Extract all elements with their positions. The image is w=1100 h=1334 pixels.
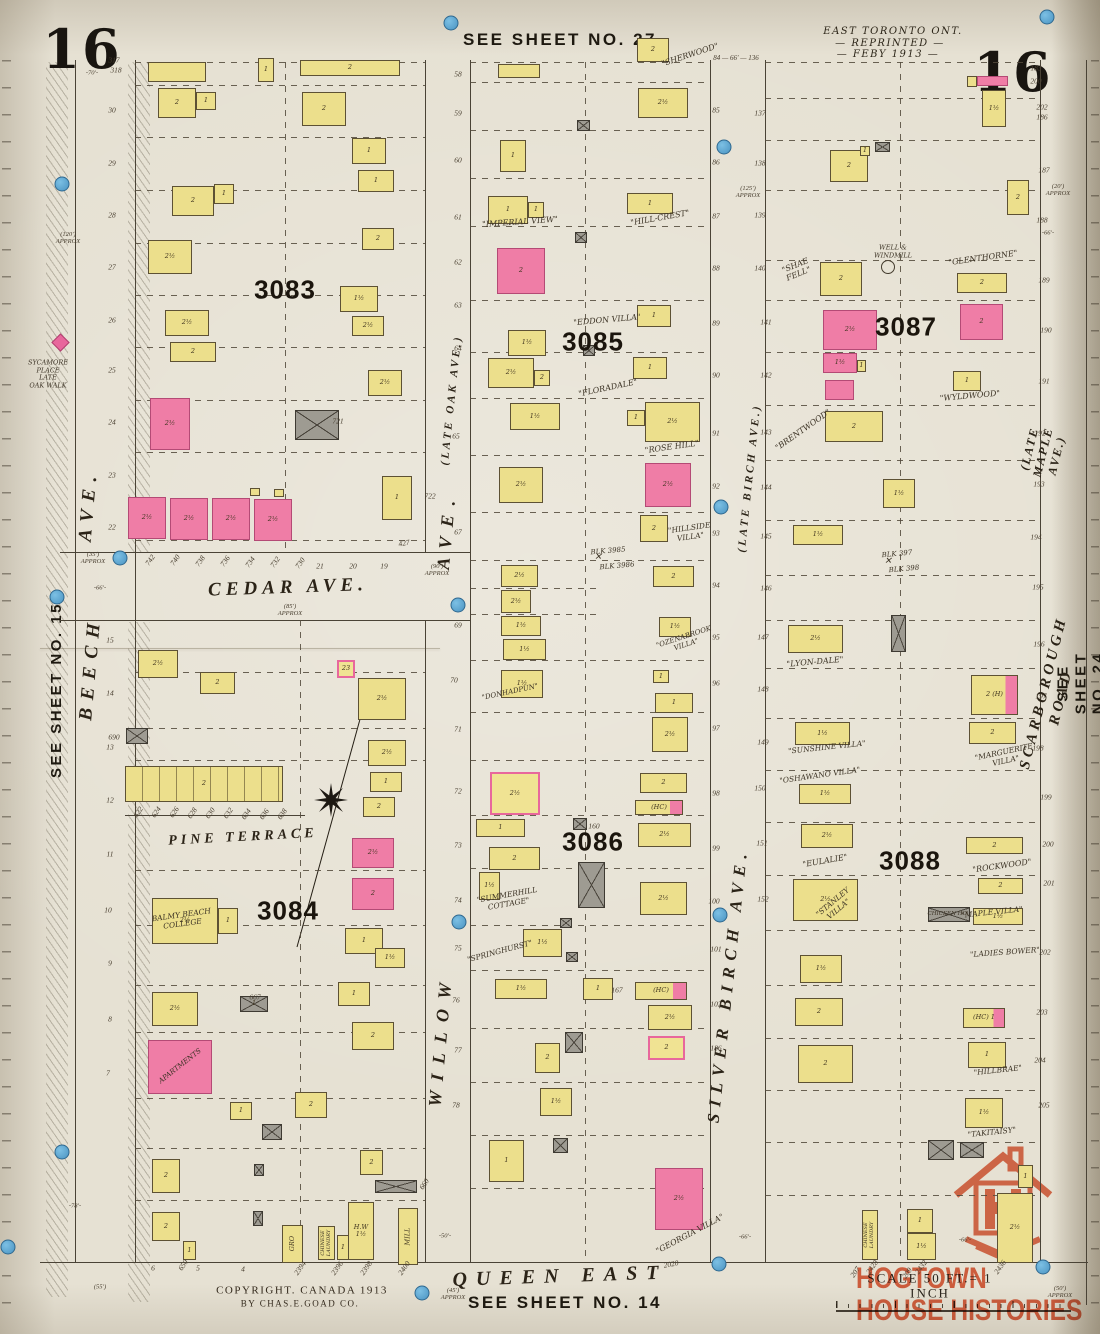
lot-number: 730 [293, 556, 307, 570]
lot-number: 93 [712, 529, 720, 538]
misc-label: CHINESE LAUNDRY [321, 1230, 333, 1256]
lot-number: 27 [108, 263, 116, 272]
villa-label: "HILLSIDE VILLA" [668, 521, 713, 544]
street-line [60, 620, 470, 621]
lot-line [470, 925, 710, 926]
lot-number: 89 [712, 319, 720, 328]
building-annotation: 1½ [354, 295, 364, 302]
lot-number: 636 [257, 807, 271, 821]
building-annotation: 1 [374, 177, 378, 184]
building-annotation: 1½ [820, 790, 830, 797]
lot-number: 427 [398, 538, 411, 549]
lot-number: 187 [1038, 166, 1049, 175]
lot-number: 194 [1030, 533, 1041, 542]
lot-line [765, 352, 1040, 353]
building [253, 1211, 263, 1226]
lot-number: 183 [1030, 64, 1041, 73]
building-annotation: 2½ [268, 516, 278, 523]
goad-fire-insurance-map-sheet: 16 16 SEE SHEET NO. 27 SEE SHEET NO. 14 … [0, 0, 1100, 1334]
building-annotation: 1½ [835, 359, 845, 366]
building [126, 728, 148, 744]
lot-number: 61 [454, 213, 462, 222]
building-annotation: 2½ [659, 831, 669, 838]
lot-line [470, 660, 710, 661]
building-annotation: (HC) [653, 987, 669, 994]
building: 2 [795, 998, 843, 1026]
lot-number: 63 [454, 301, 462, 310]
lot-number: 76 [452, 996, 460, 1005]
misc-label: ✕ [884, 557, 892, 568]
building: 2½ [638, 823, 691, 847]
lot-number: 140 [754, 264, 765, 273]
building-annotation: 2½ [665, 731, 675, 738]
building [960, 1142, 984, 1158]
lot-line [470, 614, 600, 615]
building-annotation: 1 [534, 206, 538, 213]
lot-number: 201 [1043, 879, 1054, 888]
lot-number: 167 [611, 986, 622, 995]
fire-hydrant-icon [50, 590, 65, 605]
building-annotation: 2 [376, 235, 380, 242]
building: 1½ [800, 955, 842, 983]
lot-number: 7 [106, 1069, 110, 1078]
lot-number: 88 [712, 264, 720, 273]
building-annotation: 2 [202, 780, 206, 787]
building [566, 952, 578, 962]
building: 2½ [488, 358, 534, 388]
lot-number: 96 [712, 679, 720, 688]
building-annotation: 1½ [530, 413, 540, 420]
dim-label: -66'- [739, 1234, 751, 1241]
building: 2 [640, 515, 668, 542]
lot-number: 634 [239, 807, 253, 821]
villa-label: "LADIES BOWER" [970, 946, 1040, 960]
lot-number: 97 [712, 724, 720, 733]
building: 2 [152, 1159, 180, 1193]
building: 1½ [907, 1233, 936, 1260]
lot-number: 72 [454, 787, 462, 796]
building-annotation: 2 [322, 105, 326, 112]
building-annotation: 2 [191, 348, 195, 355]
lot-number: 202 [1036, 103, 1047, 112]
lot-line [470, 1082, 710, 1083]
lot-number: 8 [108, 1015, 112, 1024]
block-label: 3088 [879, 846, 941, 877]
building-annotation: 1½ [516, 622, 526, 629]
lot-line [765, 62, 1040, 63]
misc-label: CHINESE LAUNDRY [864, 1222, 876, 1248]
lot-line [135, 672, 425, 673]
dim-label: (45') APPROX [441, 1287, 466, 1301]
lot-number: 94 [712, 581, 720, 590]
lot-line [470, 82, 710, 83]
lot-line [765, 190, 1040, 191]
lot-line [765, 822, 1040, 823]
lot-number: 660 [417, 1177, 431, 1191]
building [967, 76, 977, 87]
dim-label: (55') [94, 1284, 106, 1291]
lot-number: 200 [1030, 77, 1041, 86]
building-annotation: 2 [852, 423, 856, 430]
building: 1½ [501, 616, 541, 636]
lot-number: 145 [760, 532, 771, 541]
lot-line [470, 300, 710, 301]
building: 2 [957, 273, 1007, 293]
building-annotation: 1 [511, 152, 515, 159]
building-annotation: 1 [634, 414, 638, 421]
lot-number: 142 [760, 371, 771, 380]
building: 2 [152, 1212, 180, 1241]
building: 2½ [212, 498, 250, 540]
see-sheet-ref-left: SEE SHEET NO. 15 [48, 602, 66, 778]
building: 2 [302, 92, 346, 126]
lot-number: 147 [757, 633, 768, 642]
dim-label: -70'- [86, 70, 98, 77]
street-line [425, 60, 426, 552]
lot-line [765, 575, 1040, 576]
lot-number: 202 [1039, 948, 1050, 957]
building-annotation: 2 [980, 279, 984, 286]
lot-line [470, 815, 710, 816]
lot-line [470, 1135, 710, 1136]
building-annotation: 2 [215, 679, 219, 686]
lot-number: 85 [712, 106, 720, 115]
building-annotation: 1 [985, 1051, 989, 1058]
building: 1½ [793, 525, 843, 545]
building: 2½ [170, 498, 208, 540]
building-annotation: 1½ [519, 646, 529, 653]
building-annotation: 2 [651, 46, 655, 53]
dim-label: (20') APPROX [1046, 183, 1071, 197]
dim-label: (35') APPROX [81, 551, 106, 565]
building-annotation: 1 [965, 377, 969, 384]
building-annotation: 2 [1016, 194, 1020, 201]
building-annotation: 2½ [667, 418, 677, 425]
building-annotation: 1½ [989, 105, 999, 112]
building [498, 64, 540, 78]
lot-number: 736 [218, 554, 232, 568]
dim-label: (90') APPROX [425, 563, 450, 577]
building-annotation: 2½ [382, 749, 392, 756]
building [977, 76, 1008, 86]
lot-number: 738 [193, 554, 207, 568]
lot-number: 732 [268, 555, 282, 569]
lot-number: 26 [108, 316, 116, 325]
building-annotation: 1½ [816, 965, 826, 972]
lot-line [765, 300, 1040, 301]
lot-number: 12 [106, 796, 114, 805]
building: 2 (H) [971, 675, 1018, 715]
villa-label: "TAKITAISY" [967, 1126, 1016, 1140]
lot-number: 15 [106, 636, 114, 645]
building: 2 [125, 766, 283, 802]
building-annotation: 2 [992, 842, 996, 849]
dim-label: (125') APPROX [736, 185, 761, 199]
lot-number: 60 [454, 156, 462, 165]
street-line [1040, 60, 1041, 1262]
building-annotation: 2½ [184, 515, 194, 522]
building-annotation: 2 [512, 855, 516, 862]
building-annotation: 1 [863, 147, 867, 154]
building-annotation: 2 [309, 1101, 313, 1108]
lot-number: 198 [1032, 744, 1043, 753]
building-annotation: 1 [384, 778, 388, 785]
building-annotation: 1 [596, 985, 600, 992]
lot-number: 626 [167, 805, 181, 819]
building: 1½ [508, 330, 546, 356]
lot-number: 10 [104, 906, 112, 915]
lot-number: 149 [757, 738, 768, 747]
misc-label: SYCAMORE PLACE LATE OAK WALK [28, 360, 68, 391]
building: 1 [633, 357, 667, 379]
building: 2½ [128, 497, 166, 539]
lot-number: 200 [1042, 840, 1053, 849]
building: 2 [978, 878, 1023, 894]
building-annotation: 1½ [551, 1098, 561, 1105]
copyright-line: COPYRIGHT. CANADA 1913 [216, 1285, 388, 1298]
building: 1 [230, 1102, 252, 1120]
lot-number: 87 [712, 212, 720, 221]
building: 1½ [965, 1098, 1003, 1128]
building [875, 142, 890, 152]
building-annotation: 2 [998, 882, 1002, 889]
building-annotation: 1 [498, 824, 502, 831]
building: 2 [362, 228, 394, 250]
building-annotation: 1 [226, 917, 230, 924]
building: 2 [352, 878, 394, 910]
street-line [135, 60, 136, 1262]
street-label: (LATE OAK AVE.) [439, 334, 466, 466]
building: 1 [338, 982, 370, 1006]
building-annotation: 1 [504, 1157, 508, 1164]
building: 2½ [638, 88, 688, 118]
building-annotation: 2½ [142, 514, 152, 521]
building-annotation: 2½ [368, 849, 378, 856]
building: 2 [1007, 180, 1029, 215]
lot-line [135, 1148, 425, 1149]
lot-number: 740 [168, 553, 182, 567]
building-annotation: 1½ [979, 1109, 989, 1116]
lot-number: 69 [454, 621, 462, 630]
building: (HC) [635, 800, 683, 815]
building-annotation: 2 [545, 1054, 549, 1061]
building-annotation: 1 [362, 937, 366, 944]
building: 1½ [510, 403, 560, 430]
building-annotation: 2 [661, 779, 665, 786]
lot-line [470, 398, 710, 399]
lot-line [765, 718, 1040, 719]
lot-number: 58 [454, 70, 462, 79]
lot-number: 150 [754, 784, 765, 793]
building: 1 [258, 58, 274, 82]
lot-line [765, 520, 1040, 521]
lot-number: 23 [108, 471, 116, 480]
building: 2½ [368, 740, 406, 766]
building-annotation: 2 [990, 729, 994, 736]
building-annotation: 2 [979, 318, 983, 325]
lot-line [470, 760, 710, 761]
lot-number: 29 [108, 159, 116, 168]
building [578, 862, 605, 908]
lot-line [765, 668, 1040, 669]
dim-label: -50'- [439, 1233, 451, 1240]
building-annotation: 2 [519, 267, 523, 274]
building: 2½ [490, 772, 540, 815]
building: 2½ [648, 1005, 692, 1030]
dim-label: (120') APPROX [56, 231, 81, 245]
building-annotation: 2½ [674, 1195, 684, 1202]
building [577, 120, 590, 131]
building-annotation: 2 [540, 374, 544, 381]
building-annotation: 1 [222, 190, 226, 197]
building: GRO [282, 1225, 303, 1263]
lot-line [765, 1142, 1040, 1143]
building: 2½ [138, 650, 178, 678]
lot-number: 13 [106, 743, 114, 752]
map-title-line: — FEBY 1913 — [837, 49, 940, 61]
building-annotation: 2 [164, 1223, 168, 1230]
sheet-edge-ticks [2, 60, 11, 1310]
lot-line [765, 460, 1040, 461]
lot-line [765, 1038, 1040, 1039]
building-annotation: 2 [839, 275, 843, 282]
lot-number: 318 [110, 66, 121, 75]
lot-number: 193 [1033, 480, 1044, 489]
building-annotation: 2 [652, 525, 656, 532]
villa-label: "GLENTHORNE" [948, 248, 1018, 267]
building-annotation: 2½ [380, 379, 390, 386]
building [565, 1032, 583, 1053]
building-annotation: MILL [404, 1228, 411, 1246]
building-annotation: 1½ [916, 1243, 926, 1250]
building: 2 [172, 186, 214, 216]
building-annotation: 1 [264, 66, 268, 73]
building: 1 [1018, 1165, 1033, 1188]
building-annotation: 2½ [510, 790, 520, 797]
lot-number: 721 [332, 417, 343, 426]
lot-line [470, 560, 710, 561]
dim-label: -66'- [959, 1237, 971, 1244]
building-annotation: 2½ [165, 420, 175, 427]
lot-line [765, 985, 1040, 986]
building-annotation: 2 [823, 1060, 827, 1067]
building: 2 [966, 837, 1023, 854]
lot-number: 690 [108, 733, 119, 742]
building: 2½ [150, 398, 190, 450]
building: 1 [637, 305, 671, 327]
building-annotation: 23 [342, 665, 350, 672]
dim-label: (50') APPROX [1048, 1285, 1073, 1299]
building: 1 [583, 978, 613, 1000]
dim-label: 84 — 66' — 136 [713, 54, 758, 62]
building [928, 1140, 954, 1160]
building-annotation: 2½ [226, 515, 236, 522]
lot-number: 628 [185, 806, 199, 820]
building: 1 [655, 693, 693, 713]
building-annotation: 1 [859, 362, 863, 369]
watermark-text: HOGTOWN [856, 1263, 1061, 1295]
villa-label: "WYLDWOOD" [940, 389, 1001, 404]
lot-number: 137 [754, 109, 765, 118]
building: 1 [907, 1209, 933, 1233]
building [553, 1138, 568, 1153]
lot-number: 4 [241, 1265, 245, 1274]
street-label: CEDAR AVE. [208, 574, 369, 602]
building-annotation: 2 [664, 1044, 668, 1051]
lot-number: 78 [452, 1101, 460, 1110]
lot-number: 22 [108, 523, 116, 532]
lot-number: 742 [143, 553, 157, 567]
building-annotation: 1½ [813, 531, 823, 538]
building: 2 [352, 1022, 394, 1050]
building: 2 [300, 60, 400, 76]
lot-number: 191 [1038, 377, 1049, 386]
building-annotation: 1½ [522, 339, 532, 346]
building: 2½ [645, 402, 700, 442]
street-line [1086, 60, 1087, 1305]
building-annotation: 2½ [182, 319, 192, 326]
building [825, 380, 854, 400]
building-annotation: H.W 1½ [354, 1224, 368, 1238]
building-annotation: 1 [239, 1107, 243, 1114]
lot-number: 195 [1032, 583, 1043, 592]
lot-number: 199 [1040, 793, 1051, 802]
block-label: 3084 [257, 896, 319, 927]
building [262, 1124, 282, 1140]
building-annotation: 2 [164, 1172, 168, 1179]
building: 1½ [982, 90, 1006, 127]
lot-number: 20 [349, 562, 357, 571]
lot-number: 192 [1034, 429, 1045, 438]
building-annotation: 2 [371, 890, 375, 897]
building-annotation: 2½ [363, 322, 373, 329]
building-annotation: 1 [341, 1244, 345, 1251]
lot-number: 102 [710, 1000, 721, 1009]
lot-line [135, 1200, 425, 1201]
street-label: BEECH [75, 614, 107, 721]
lot-number: 9 [108, 959, 112, 968]
building-annotation: 2½ [516, 481, 526, 488]
lot-line [135, 728, 425, 729]
see-sheet-ref-bottom: SEE SHEET NO. 14 [468, 1293, 662, 1313]
building: 2 [360, 1150, 383, 1175]
building: 2½ [640, 882, 687, 915]
lot-line [285, 62, 286, 552]
building: 2 [969, 722, 1016, 744]
dim-label: (85') APPROX [278, 603, 303, 617]
building [891, 615, 906, 652]
building: 1 [860, 146, 870, 156]
building [250, 488, 260, 496]
building-annotation: 2½ [665, 1014, 675, 1021]
building-annotation: (HC) 1 [973, 1014, 995, 1021]
building-annotation: 1½ [484, 882, 494, 889]
building: 2 [825, 411, 883, 442]
building: (HC) 1 [963, 1008, 1005, 1028]
lot-number: 24 [108, 418, 116, 427]
building: 1 [968, 1042, 1006, 1068]
lot-number: 21 [316, 562, 324, 571]
building: 2 [960, 304, 1003, 340]
building: 1½ [823, 353, 857, 373]
building-annotation: 2 [377, 803, 381, 810]
lot-line [470, 178, 710, 179]
lot-line [470, 970, 710, 971]
block-label: 3085 [562, 327, 624, 358]
lot-number: 25 [108, 366, 116, 375]
lot-line [470, 130, 710, 131]
building: 2½ [501, 590, 531, 613]
